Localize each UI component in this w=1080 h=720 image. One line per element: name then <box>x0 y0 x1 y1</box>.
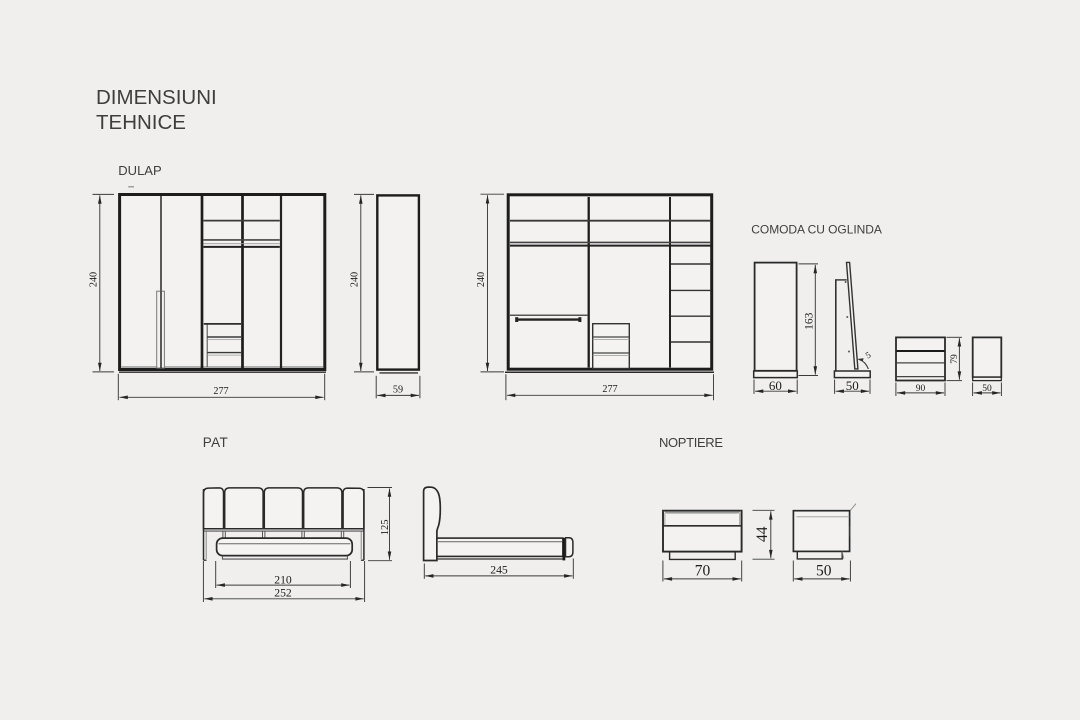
svg-text:50: 50 <box>846 378 859 393</box>
svg-text:210: 210 <box>274 574 292 587</box>
svg-text:50: 50 <box>816 562 832 579</box>
svg-text:PAT: PAT <box>203 435 228 450</box>
svg-text:163: 163 <box>804 312 816 330</box>
svg-text:60: 60 <box>769 378 782 393</box>
svg-text:5: 5 <box>864 349 873 360</box>
svg-text:252: 252 <box>274 587 292 600</box>
svg-text:90: 90 <box>916 384 926 394</box>
svg-text:59: 59 <box>393 384 403 395</box>
svg-text:240: 240 <box>349 272 360 287</box>
svg-text:125: 125 <box>380 520 391 536</box>
svg-text:NOPTIERE: NOPTIERE <box>659 435 723 450</box>
svg-text:240: 240 <box>89 272 100 287</box>
svg-text:277: 277 <box>602 384 617 395</box>
svg-text:277: 277 <box>213 386 228 397</box>
svg-text:TEHNICE: TEHNICE <box>96 111 186 134</box>
svg-text:44: 44 <box>754 526 771 542</box>
svg-text:50: 50 <box>982 384 992 394</box>
svg-text:240: 240 <box>476 272 487 287</box>
svg-text:DIMENSIUNI: DIMENSIUNI <box>96 86 217 109</box>
svg-text:79: 79 <box>950 354 960 364</box>
svg-text:COMODA CU OGLINDA: COMODA CU OGLINDA <box>751 223 882 237</box>
svg-text:70: 70 <box>695 562 711 579</box>
svg-text:DULAP: DULAP <box>118 163 161 178</box>
svg-text:245: 245 <box>490 563 508 576</box>
